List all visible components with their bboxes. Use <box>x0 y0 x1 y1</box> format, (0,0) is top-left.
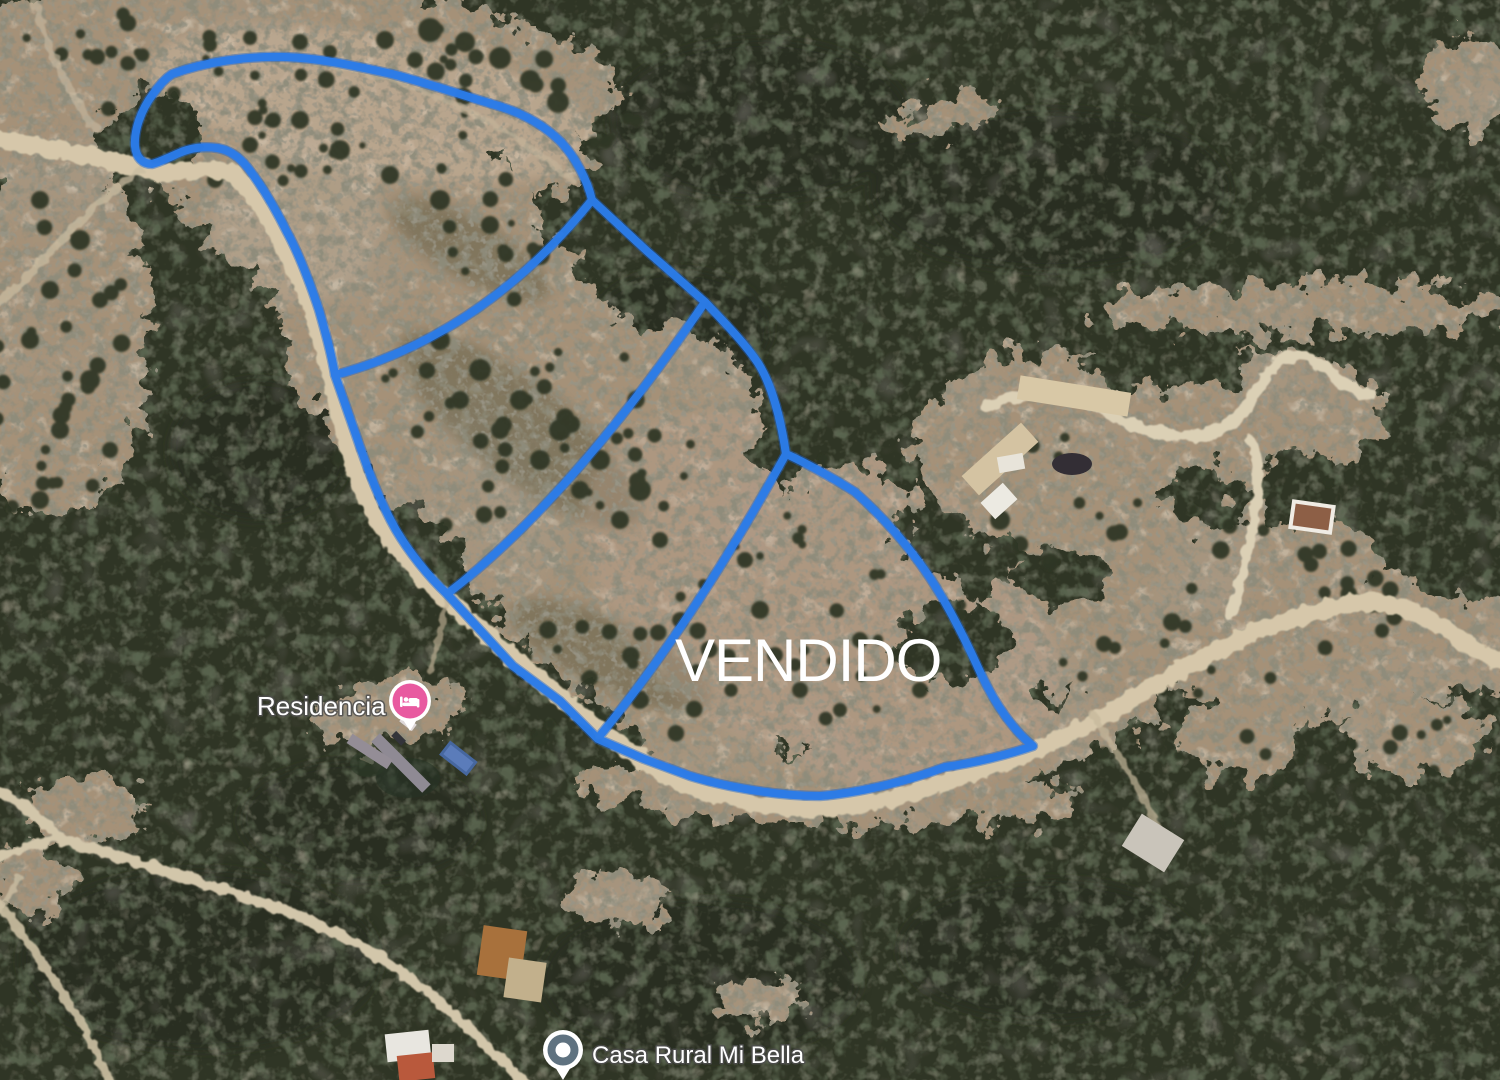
svg-text:Casa Rural Mi Bella: Casa Rural Mi Bella <box>592 1042 805 1069</box>
svg-text:VENDIDO: VENDIDO <box>675 627 941 694</box>
svg-text:Residencia: Residencia <box>257 691 386 721</box>
